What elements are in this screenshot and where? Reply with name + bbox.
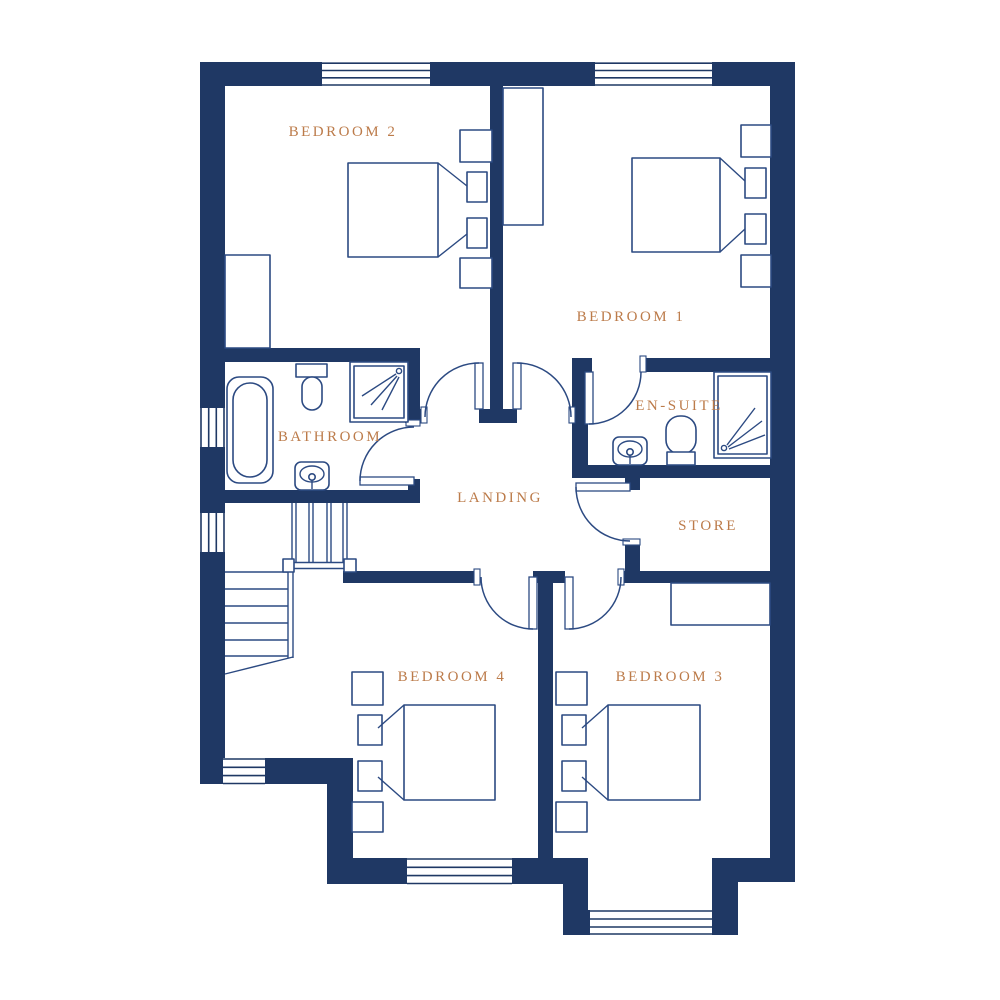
label-bedroom4: BEDROOM 4 [398,669,507,685]
stair-break-line [225,657,293,674]
floor-plan: BEDROOM 2 BEDROOM 1 BATHROOM EN-SUITE LA… [0,0,1000,1000]
bedside-table [460,258,492,288]
pillow [562,715,586,745]
pillow [467,172,487,202]
washbasin-icon [295,462,329,490]
wardrobe-bedroom1 [503,88,543,225]
bedside-table [460,130,492,162]
window-stairwell-left [200,513,225,552]
bedside-table [352,672,383,705]
wall-se-bottom [712,858,795,882]
pillow [358,715,382,745]
bed-bedroom4 [352,672,495,832]
ensuite-fixtures [613,372,771,465]
wardrobe-bedroom2 [225,255,270,348]
door-bedroom2 [421,363,483,423]
wardrobe-bedroom3 [671,583,770,625]
bed-bedroom2 [348,130,492,288]
window-bedroom4 [407,858,512,884]
toilet-icon [296,364,327,410]
wall-bathroom-north [200,348,420,362]
ensuite-toilet-icon [666,416,696,465]
pillow [467,218,487,248]
window-stairwell-bottom [223,758,265,784]
label-landing: LANDING [457,490,543,506]
label-bedroom3: BEDROOM 3 [616,669,725,685]
staircase [225,503,356,674]
bedside-table [352,802,383,832]
stair-newel-left [283,559,294,572]
door-bedroom1 [513,363,575,423]
label-store: STORE [678,518,738,534]
floor-plan-drawing: BEDROOM 2 BEDROOM 1 BATHROOM EN-SUITE LA… [0,0,1000,1000]
wall-bed3-bed4-divider [538,571,553,858]
label-bedroom1: BEDROOM 1 [577,309,686,325]
window-bathroom [200,408,225,447]
window-bay-bedroom3 [590,910,712,935]
wall-door-base [479,409,517,423]
ensuite-washbasin-icon [613,437,647,465]
bed-bedroom1 [632,125,771,287]
bedside-table [556,802,587,832]
label-bedroom2: BEDROOM 2 [289,124,398,140]
stair-handrail [294,563,344,569]
bedside-table [556,672,587,705]
bedside-table [741,255,771,287]
pillow [745,214,766,244]
bathtub-icon [227,377,273,483]
wall-store-stub-bottom [625,542,640,573]
wall-ensuite-south [572,465,770,478]
door-store [576,483,640,545]
wall-bathroom-east-upper [408,362,420,424]
doorway-bedroom4 [477,570,533,584]
stair-newel-right [344,559,356,572]
window-bedroom1 [595,62,712,86]
bed-bedroom3 [556,672,700,832]
bedside-table [741,125,771,157]
window-bedroom2 [322,62,430,86]
ensuite-shower-icon [714,372,771,458]
label-ensuite: EN-SUITE [635,398,723,414]
wall-right [770,62,795,882]
wall-bathroom-south [200,490,420,503]
pillow [562,761,586,791]
doorway-ensuite [592,357,643,373]
shower-icon [350,362,408,422]
label-bathroom: BATHROOM [278,429,382,445]
pillow [745,168,766,198]
wall-bed34-north [343,571,770,583]
pillow [358,761,382,791]
bathroom-fixtures [227,362,408,490]
